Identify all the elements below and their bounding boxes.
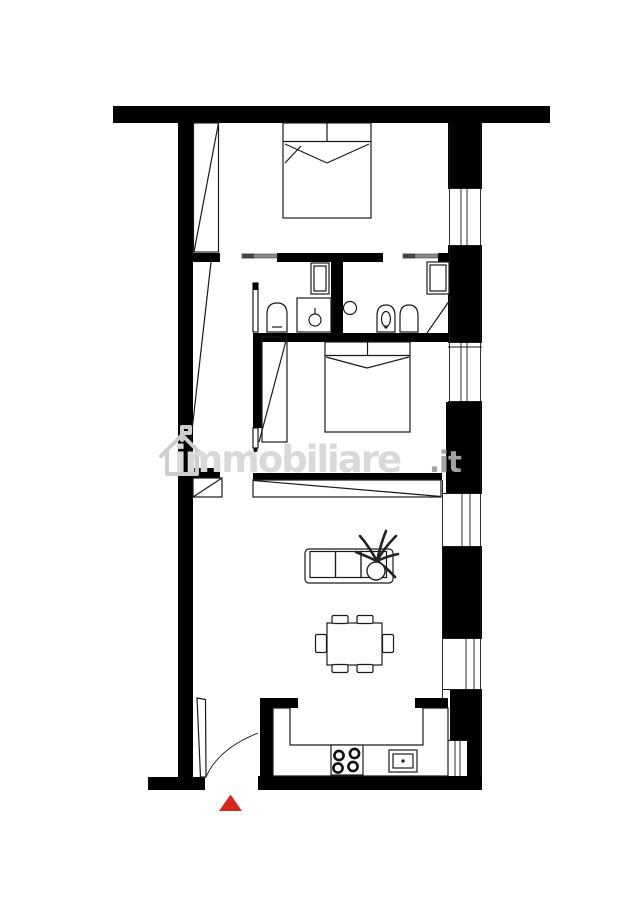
- wall-kitchen-stub-right: [415, 698, 448, 708]
- kitchen-sink-icon: [389, 750, 417, 772]
- wall-bottom: [258, 776, 482, 790]
- entrance: [197, 698, 258, 777]
- wall-bath-divider: [331, 262, 343, 333]
- living-room: [253, 480, 441, 673]
- entrance-door-leaf: [197, 698, 206, 777]
- floor-plan: immobiliare .it: [0, 0, 635, 900]
- vanity-sink-icon: [297, 298, 331, 332]
- window-1: [448, 188, 482, 246]
- door-leaf-icon: [253, 283, 258, 332]
- wall-right-d: [442, 547, 482, 638]
- bidet-icon: [377, 305, 395, 332]
- window-3: [442, 493, 482, 547]
- wardrobe-icon: [259, 337, 287, 442]
- kitchen: [273, 708, 448, 776]
- bathroom-right: [337, 254, 452, 334]
- watermark-tld-text: .it: [429, 445, 462, 479]
- wall-bath-top-mid: [277, 253, 383, 262]
- watermark-brand-text: immobiliare: [174, 438, 401, 481]
- wall-right-b: [448, 246, 482, 336]
- entrance-marker-triangle: [219, 795, 242, 812]
- double-bed-icon: [325, 342, 410, 432]
- wall-bedroom2-left: [253, 333, 262, 428]
- bathroom-left: [242, 254, 331, 333]
- wall-right-e: [450, 690, 482, 740]
- dining-table-icon: [316, 616, 394, 673]
- wall-top: [113, 106, 550, 123]
- toilet-icon: [400, 305, 418, 332]
- entrance-door-swing: [206, 733, 258, 777]
- bedroom-top: [194, 123, 372, 252]
- sliding-door-icon: [403, 254, 438, 259]
- wall-right-corner: [467, 740, 482, 780]
- washing-machine-icon: [311, 263, 329, 294]
- wall-bath-top-stub: [193, 253, 220, 262]
- toilet-icon: [267, 303, 287, 332]
- wall-bottom-left-stub: [148, 777, 205, 790]
- wall-right-a: [448, 123, 482, 188]
- window-5: [448, 740, 467, 776]
- window-4: [442, 638, 482, 690]
- wall-kitchen-left: [260, 698, 273, 778]
- window-2: [448, 342, 482, 402]
- bedroom-middle: [253, 337, 410, 452]
- watermark: immobiliare .it: [161, 427, 462, 481]
- wall-kitchen-stub-left: [260, 698, 298, 708]
- sliding-door-icon: [242, 254, 277, 259]
- wardrobe-icon: [194, 123, 219, 252]
- cooktop-icon: [331, 745, 363, 775]
- built-in-closet-icon: [253, 480, 441, 497]
- double-bed-icon: [283, 123, 371, 218]
